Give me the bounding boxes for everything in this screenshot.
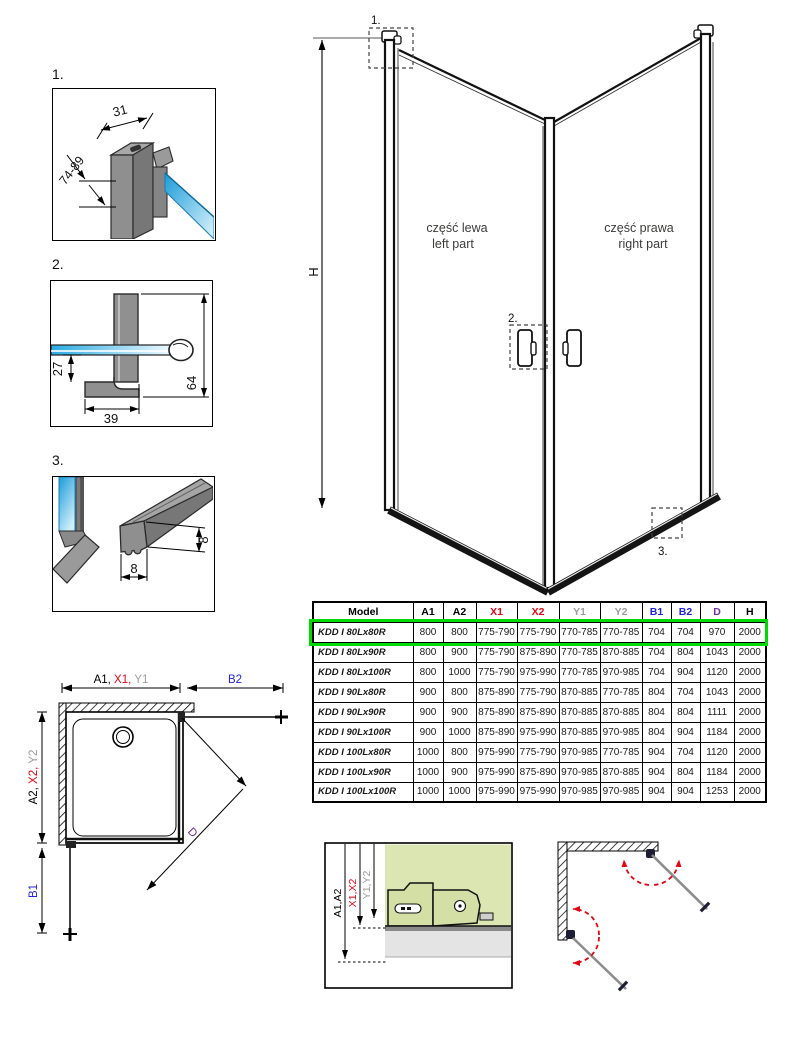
dim-8h-text: 8 bbox=[130, 561, 137, 576]
dim-a2x2y2-text: A2, X2, Y2 bbox=[28, 750, 40, 805]
detail-3-box: 8 8 bbox=[52, 476, 215, 612]
value-cell: 875-890 bbox=[476, 702, 517, 722]
value-cell: 704 bbox=[642, 642, 671, 662]
model-cell: KDD I 90Lx90R bbox=[313, 702, 413, 722]
value-cell: 870-885 bbox=[559, 682, 600, 702]
value-cell: 770-785 bbox=[600, 742, 642, 762]
model-cell: KDD I 100Lx100R bbox=[313, 782, 413, 802]
dim-8v-text: 8 bbox=[196, 536, 211, 543]
value-cell: 804 bbox=[642, 682, 671, 702]
table-row: KDD I 80Lx90R800900775-790875-890770-785… bbox=[313, 642, 766, 662]
value-cell: 870-885 bbox=[600, 762, 642, 782]
model-cell: KDD I 100Lx90R bbox=[313, 762, 413, 782]
dim-39-text: 39 bbox=[104, 411, 118, 425]
left-part-label-en: left part bbox=[432, 237, 474, 251]
door-swing-view bbox=[545, 838, 780, 1018]
value-cell: 800 bbox=[413, 642, 443, 662]
dimensions-table: ModelA1A2X1X2Y1Y2B1B2DH KDD I 80Lx80R800… bbox=[312, 601, 767, 803]
value-cell: 775-790 bbox=[517, 682, 559, 702]
value-cell: 970-985 bbox=[559, 742, 600, 762]
value-cell: 875-890 bbox=[476, 722, 517, 742]
value-cell: 1000 bbox=[413, 742, 443, 762]
model-cell: KDD I 80Lx100R bbox=[313, 662, 413, 682]
value-cell: 704 bbox=[642, 622, 671, 642]
value-cell: 770-785 bbox=[600, 622, 642, 642]
dim-a1a2-text: A1,A2 bbox=[332, 889, 344, 918]
value-cell: 2000 bbox=[734, 762, 766, 782]
value-cell: 900 bbox=[443, 702, 476, 722]
value-cell: 900 bbox=[413, 722, 443, 742]
main-drawing: H bbox=[305, 10, 785, 602]
glass-panel bbox=[165, 173, 214, 239]
swing-arc bbox=[654, 860, 679, 885]
table-row: KDD I 100Lx90R1000900975-990875-890970-9… bbox=[313, 762, 766, 782]
value-cell: 704 bbox=[671, 742, 700, 762]
dim-left: A2, X2, Y2 bbox=[28, 712, 47, 843]
value-cell: 800 bbox=[443, 742, 476, 762]
value-cell: 804 bbox=[671, 762, 700, 782]
value-cell: 2000 bbox=[734, 782, 766, 802]
technical-sheet: 1. bbox=[0, 0, 791, 1045]
value-cell: 870-885 bbox=[600, 702, 642, 722]
table-header-row: ModelA1A2X1X2Y1Y2B1B2DH bbox=[313, 602, 766, 622]
value-cell: 970-985 bbox=[600, 662, 642, 682]
swing-arc bbox=[573, 909, 599, 935]
value-cell: 904 bbox=[642, 782, 671, 802]
value-cell: 1120 bbox=[700, 742, 734, 762]
tray bbox=[385, 931, 511, 957]
detail-1-label: 1. bbox=[52, 66, 64, 82]
value-cell: 1043 bbox=[700, 642, 734, 662]
center-post bbox=[543, 118, 554, 588]
value-cell: 970-985 bbox=[559, 782, 600, 802]
top-view: D A1, X1, Y1 B2 A2, X2, Y2 B1 bbox=[25, 665, 310, 975]
dim-B2-text: B2 bbox=[228, 674, 242, 686]
value-cell: 800 bbox=[413, 622, 443, 642]
dim-64-text: 64 bbox=[184, 376, 199, 390]
left-part-label-pl: część lewa bbox=[426, 221, 487, 235]
value-cell: 770-785 bbox=[559, 622, 600, 642]
value-cell: 1043 bbox=[700, 682, 734, 702]
left-post bbox=[382, 31, 401, 510]
value-cell: 775-790 bbox=[517, 622, 559, 642]
dim-D-text: D bbox=[185, 826, 199, 840]
value-cell: 900 bbox=[413, 702, 443, 722]
dim-H-text: H bbox=[306, 267, 321, 276]
value-cell: 1253 bbox=[700, 782, 734, 802]
model-cell: KDD I 90Lx80R bbox=[313, 682, 413, 702]
value-cell: 2000 bbox=[734, 702, 766, 722]
value-cell: 975-990 bbox=[476, 742, 517, 762]
column-header-h: H bbox=[734, 602, 766, 622]
detail-1-box: 31 74-89 bbox=[52, 88, 216, 241]
detail-3-drawing: 8 8 bbox=[53, 477, 213, 610]
table-row: KDD I 80Lx100R8001000775-790975-990770-7… bbox=[313, 662, 766, 682]
value-cell: 704 bbox=[671, 622, 700, 642]
value-cell: 1120 bbox=[700, 662, 734, 682]
value-cell: 804 bbox=[671, 702, 700, 722]
swing-arc bbox=[624, 860, 649, 885]
right-post bbox=[694, 25, 713, 502]
column-header-a1: A1 bbox=[413, 602, 443, 622]
value-cell: 2000 bbox=[734, 722, 766, 742]
dimensions-table-container: ModelA1A2X1X2Y1Y2B1B2DH KDD I 80Lx80R800… bbox=[312, 601, 765, 803]
value-cell: 870-885 bbox=[559, 702, 600, 722]
value-cell: 770-785 bbox=[559, 662, 600, 682]
glass-panel bbox=[51, 345, 171, 355]
value-cell: 775-790 bbox=[476, 642, 517, 662]
dim-H: H bbox=[306, 38, 383, 508]
dim-27-text: 27 bbox=[51, 362, 65, 376]
value-cell: 975-990 bbox=[517, 722, 559, 742]
value-cell: 904 bbox=[671, 662, 700, 682]
section-view: A1,A2 X1,X2 Y1,Y2 bbox=[320, 835, 518, 993]
corner-walls bbox=[558, 842, 658, 940]
value-cell: 904 bbox=[642, 762, 671, 782]
value-cell: 970 bbox=[700, 622, 734, 642]
dim-B2: B2 bbox=[187, 674, 283, 693]
dim-B1-text: B1 bbox=[28, 884, 40, 898]
value-cell: 800 bbox=[443, 682, 476, 702]
value-cell: 1111 bbox=[700, 702, 734, 722]
value-cell: 870-885 bbox=[559, 722, 600, 742]
value-cell: 1184 bbox=[700, 762, 734, 782]
dim-74-89-text: 74-89 bbox=[56, 154, 87, 188]
column-header-b1: B1 bbox=[642, 602, 671, 622]
detail-2-box: 27 39 64 bbox=[50, 280, 213, 427]
dim-x1x2-text: X1,X2 bbox=[347, 879, 359, 908]
value-cell: 900 bbox=[413, 682, 443, 702]
value-cell: 970-985 bbox=[600, 722, 642, 742]
value-cell: 800 bbox=[443, 622, 476, 642]
value-cell: 770-785 bbox=[600, 682, 642, 702]
dim-top: A1, X1, Y1 bbox=[62, 674, 180, 693]
value-cell: 904 bbox=[642, 742, 671, 762]
hinge bbox=[66, 841, 76, 848]
value-cell: 800 bbox=[413, 662, 443, 682]
table-body: KDD I 80Lx80R800800775-790775-790770-785… bbox=[313, 622, 766, 802]
value-cell: 775-790 bbox=[476, 622, 517, 642]
value-cell: 904 bbox=[671, 722, 700, 742]
value-cell: 875-890 bbox=[517, 762, 559, 782]
value-cell: 975-990 bbox=[476, 762, 517, 782]
right-part-label-en: right part bbox=[618, 237, 668, 251]
svg-text:2.: 2. bbox=[508, 313, 518, 325]
shower-tray bbox=[66, 712, 183, 843]
table-row: KDD I 90Lx100R9001000875-890975-990870-8… bbox=[313, 722, 766, 742]
value-cell: 2000 bbox=[734, 742, 766, 762]
value-cell: 2000 bbox=[734, 682, 766, 702]
value-cell: 975-990 bbox=[517, 782, 559, 802]
dim-y1y2-text: Y1,Y2 bbox=[361, 871, 373, 900]
model-cell: KDD I 80Lx80R bbox=[313, 622, 413, 642]
svg-text:1.: 1. bbox=[371, 15, 381, 27]
dim-27 bbox=[63, 355, 81, 382]
value-cell: 1000 bbox=[443, 722, 476, 742]
value-cell: 875-890 bbox=[476, 682, 517, 702]
value-cell: 875-890 bbox=[517, 642, 559, 662]
value-cell: 775-790 bbox=[476, 662, 517, 682]
value-cell: 775-790 bbox=[517, 742, 559, 762]
value-cell: 704 bbox=[642, 662, 671, 682]
table-row: KDD I 100Lx80R1000800975-990775-790970-9… bbox=[313, 742, 766, 762]
glass-with-seal bbox=[53, 477, 99, 583]
value-cell: 704 bbox=[671, 682, 700, 702]
model-cell: KDD I 90Lx100R bbox=[313, 722, 413, 742]
value-cell: 2000 bbox=[734, 662, 766, 682]
value-cell: 1000 bbox=[413, 782, 443, 802]
column-header-a2: A2 bbox=[443, 602, 476, 622]
value-cell: 900 bbox=[443, 762, 476, 782]
table-row: KDD I 100Lx100R10001000975-990975-990970… bbox=[313, 782, 766, 802]
table-row: KDD I 90Lx90R900900875-890875-890870-885… bbox=[313, 702, 766, 722]
value-cell: 1000 bbox=[443, 662, 476, 682]
column-header-b2: B2 bbox=[671, 602, 700, 622]
value-cell: 975-990 bbox=[476, 782, 517, 802]
svg-text:3.: 3. bbox=[658, 546, 668, 558]
value-cell: 904 bbox=[671, 782, 700, 802]
table-row: KDD I 80Lx80R800800775-790775-790770-785… bbox=[313, 622, 766, 642]
column-header-x2: X2 bbox=[517, 602, 559, 622]
detail-2-drawing: 27 39 64 bbox=[51, 281, 211, 425]
dim-B1: B1 bbox=[28, 848, 47, 933]
dim-a1x1y1-text: A1, X1, Y1 bbox=[94, 674, 149, 686]
value-cell: 804 bbox=[642, 702, 671, 722]
value-cell: 2000 bbox=[734, 622, 766, 642]
model-cell: KDD I 100Lx80R bbox=[313, 742, 413, 762]
value-cell: 804 bbox=[642, 722, 671, 742]
value-cell: 975-990 bbox=[517, 662, 559, 682]
column-header-y1: Y1 bbox=[559, 602, 600, 622]
value-cell: 900 bbox=[443, 642, 476, 662]
left-door-swing bbox=[566, 909, 627, 990]
value-cell: 970-985 bbox=[559, 762, 600, 782]
value-cell: 1000 bbox=[413, 762, 443, 782]
table-row: KDD I 90Lx80R900800875-890775-790870-885… bbox=[313, 682, 766, 702]
glass-top-edges bbox=[399, 38, 701, 126]
value-cell: 970-985 bbox=[600, 782, 642, 802]
value-cell: 870-885 bbox=[600, 642, 642, 662]
knob bbox=[169, 340, 193, 361]
right-door-swing bbox=[624, 849, 709, 911]
value-cell: 1184 bbox=[700, 722, 734, 742]
value-cell: 770-785 bbox=[559, 642, 600, 662]
detail-2-label: 2. bbox=[52, 256, 64, 272]
model-cell: KDD I 80Lx90R bbox=[313, 642, 413, 662]
value-cell: 1000 bbox=[443, 782, 476, 802]
detail-3-label: 3. bbox=[52, 452, 64, 468]
column-header-model: Model bbox=[313, 602, 413, 622]
value-cell: 2000 bbox=[734, 642, 766, 662]
column-header-x1: X1 bbox=[476, 602, 517, 622]
value-cell: 875-890 bbox=[517, 702, 559, 722]
value-cell: 804 bbox=[671, 642, 700, 662]
dim-31-text: 31 bbox=[111, 102, 129, 120]
column-header-d: D bbox=[700, 602, 734, 622]
detail-1-drawing: 31 74-89 bbox=[53, 89, 214, 239]
left-door bbox=[63, 841, 77, 941]
column-header-y2: Y2 bbox=[600, 602, 642, 622]
right-part-label-pl: część prawa bbox=[604, 221, 674, 235]
wall-profile bbox=[111, 143, 173, 239]
